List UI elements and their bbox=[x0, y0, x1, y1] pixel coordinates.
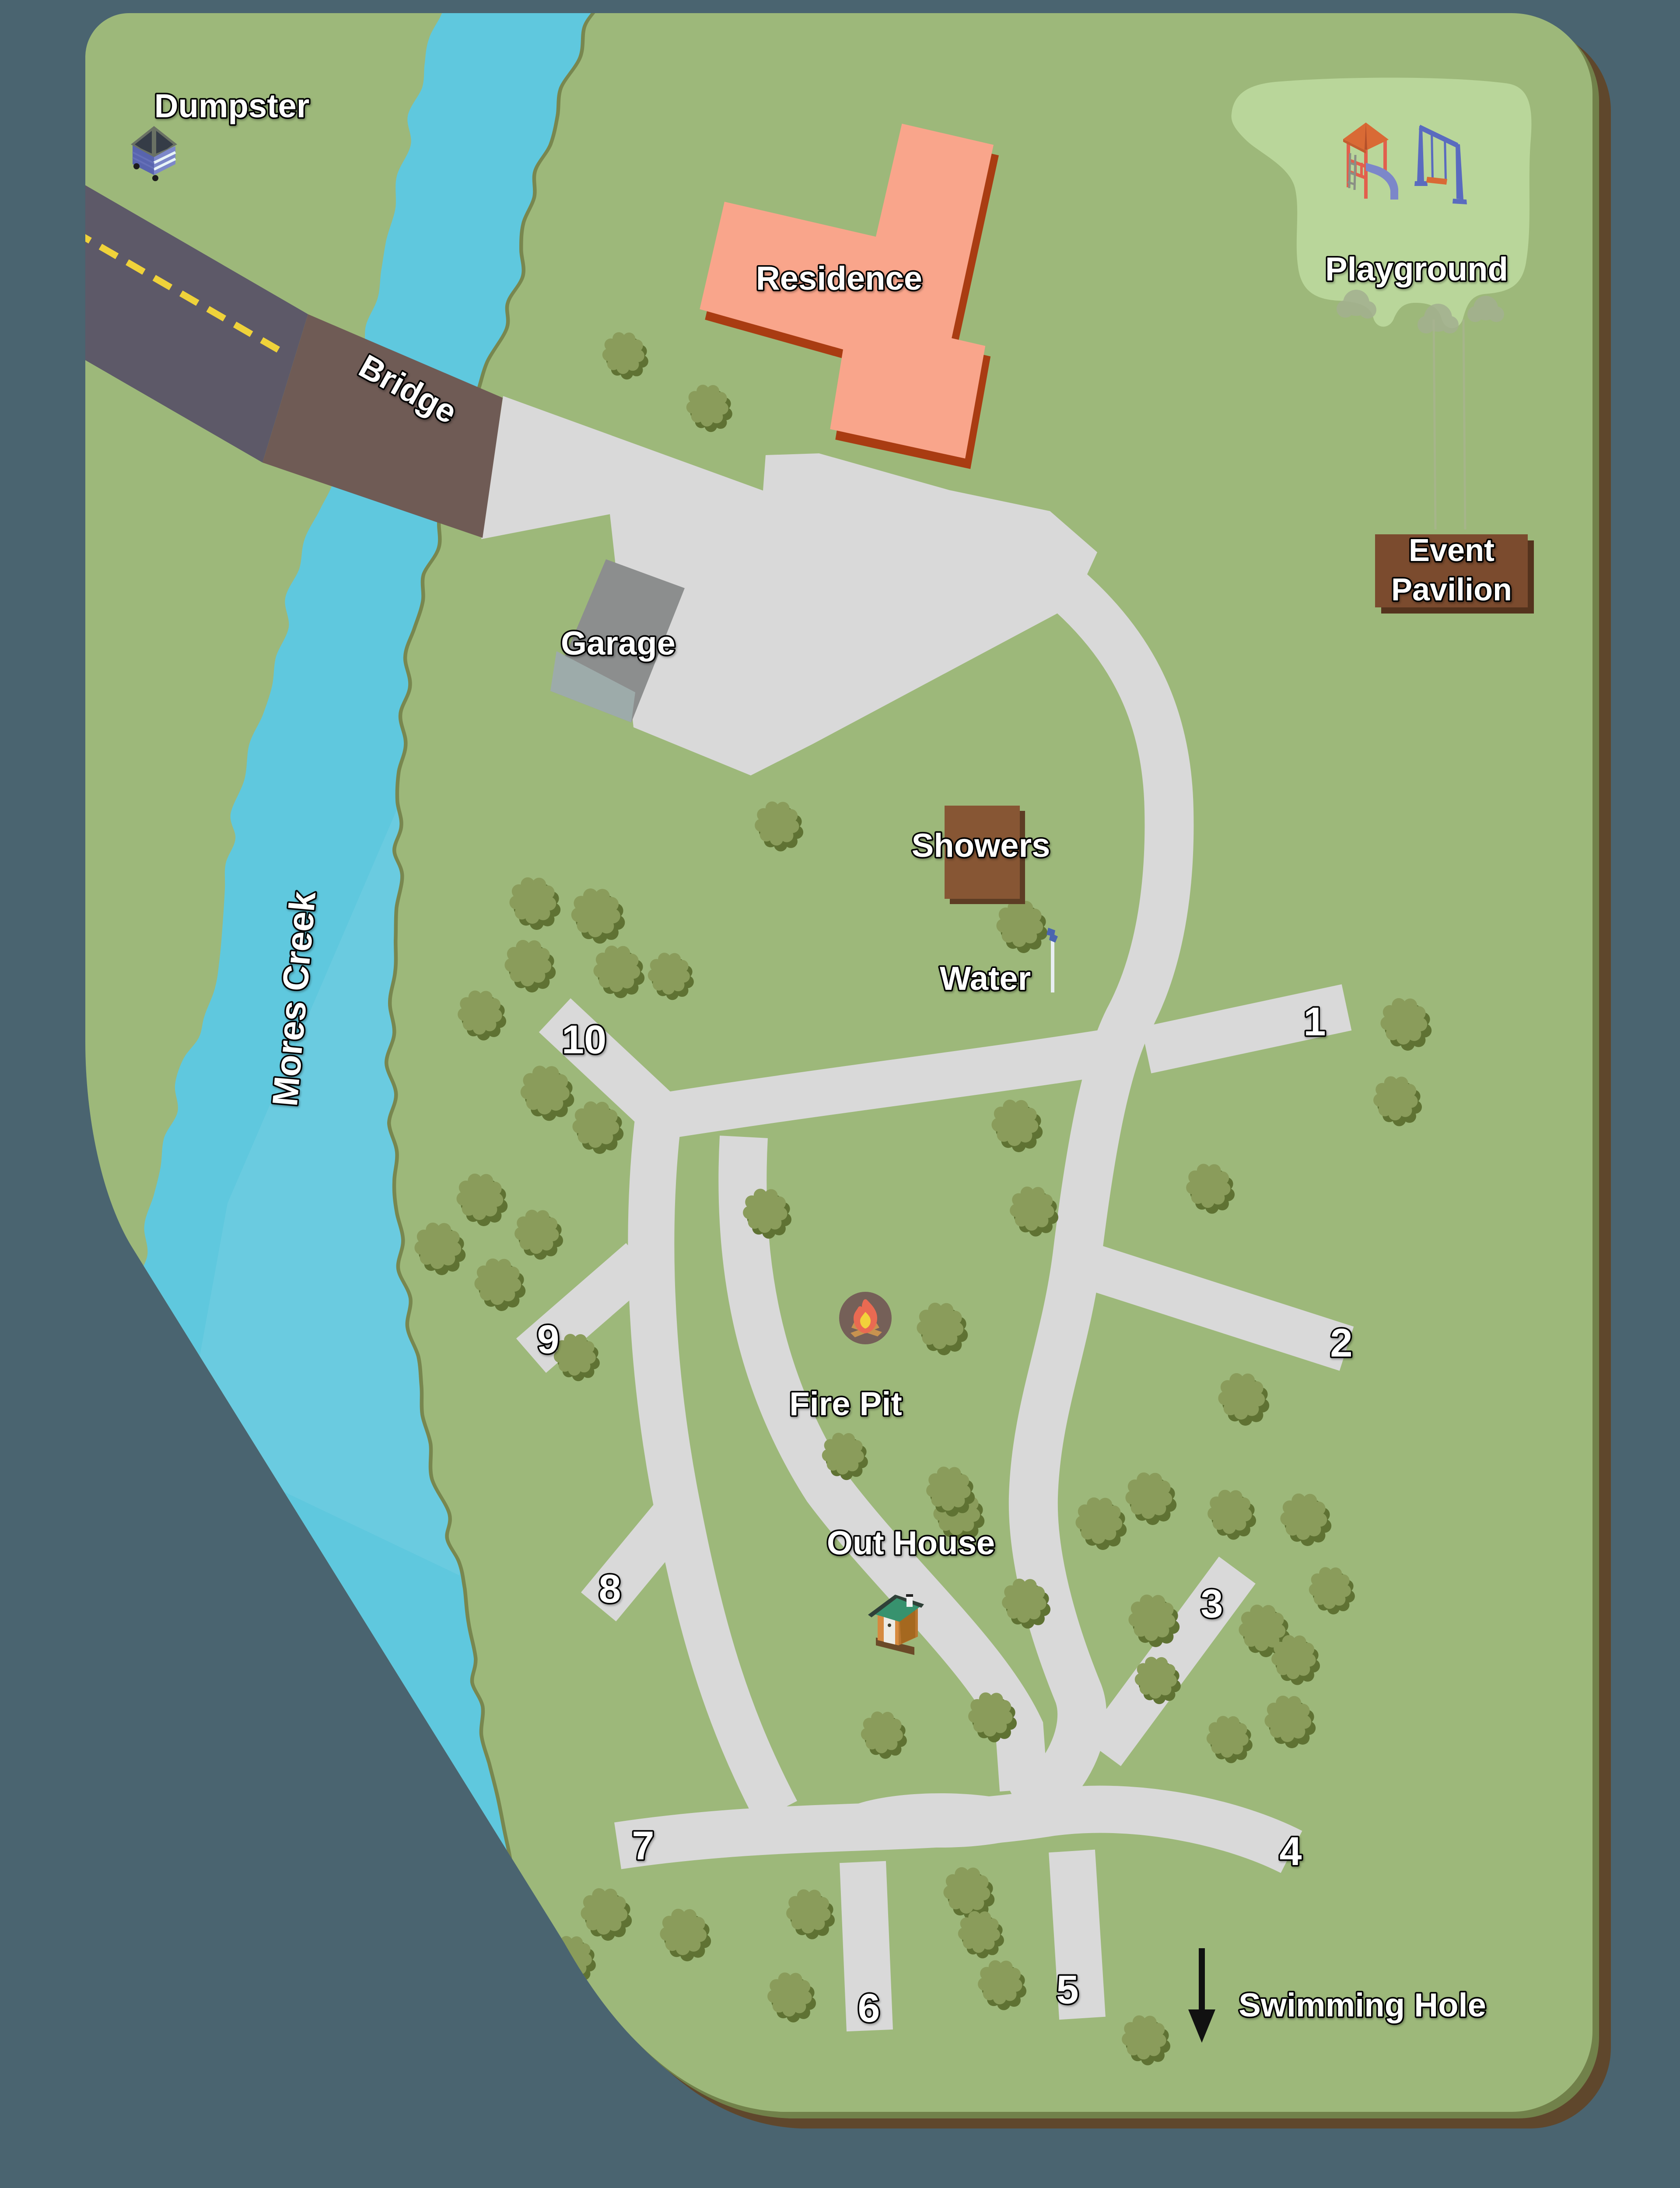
svg-text:Water: Water bbox=[940, 960, 1031, 997]
svg-text:3: 3 bbox=[1200, 1581, 1223, 1626]
svg-text:2: 2 bbox=[1330, 1321, 1352, 1365]
svg-text:Garage: Garage bbox=[561, 625, 675, 662]
svg-text:6: 6 bbox=[857, 1986, 880, 2030]
svg-text:5: 5 bbox=[1056, 1967, 1078, 2012]
svg-text:Playground: Playground bbox=[1325, 251, 1508, 288]
svg-text:Event: Event bbox=[1409, 533, 1494, 568]
svg-text:Swimming Hole: Swimming Hole bbox=[1239, 1987, 1486, 2024]
svg-text:1: 1 bbox=[1303, 999, 1326, 1044]
svg-text:Showers: Showers bbox=[912, 827, 1050, 864]
svg-text:Fire Pit: Fire Pit bbox=[789, 1385, 902, 1423]
svg-text:8: 8 bbox=[598, 1567, 621, 1611]
svg-text:9: 9 bbox=[537, 1317, 559, 1362]
svg-text:Residence: Residence bbox=[756, 260, 922, 297]
svg-text:7: 7 bbox=[632, 1823, 654, 1868]
svg-text:Out House: Out House bbox=[827, 1525, 995, 1562]
svg-text:10: 10 bbox=[562, 1017, 606, 1062]
svg-text:Pavilion: Pavilion bbox=[1391, 572, 1512, 607]
svg-text:Dumpster: Dumpster bbox=[154, 88, 310, 125]
svg-text:4: 4 bbox=[1279, 1829, 1302, 1874]
